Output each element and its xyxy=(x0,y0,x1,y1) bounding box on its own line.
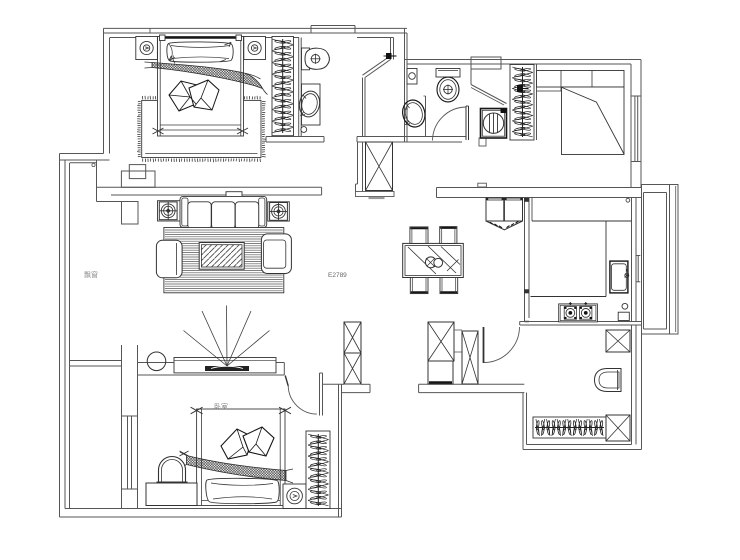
svg-text:飘窗: 飘窗 xyxy=(84,270,98,279)
svg-text:E2789: E2789 xyxy=(328,272,347,279)
